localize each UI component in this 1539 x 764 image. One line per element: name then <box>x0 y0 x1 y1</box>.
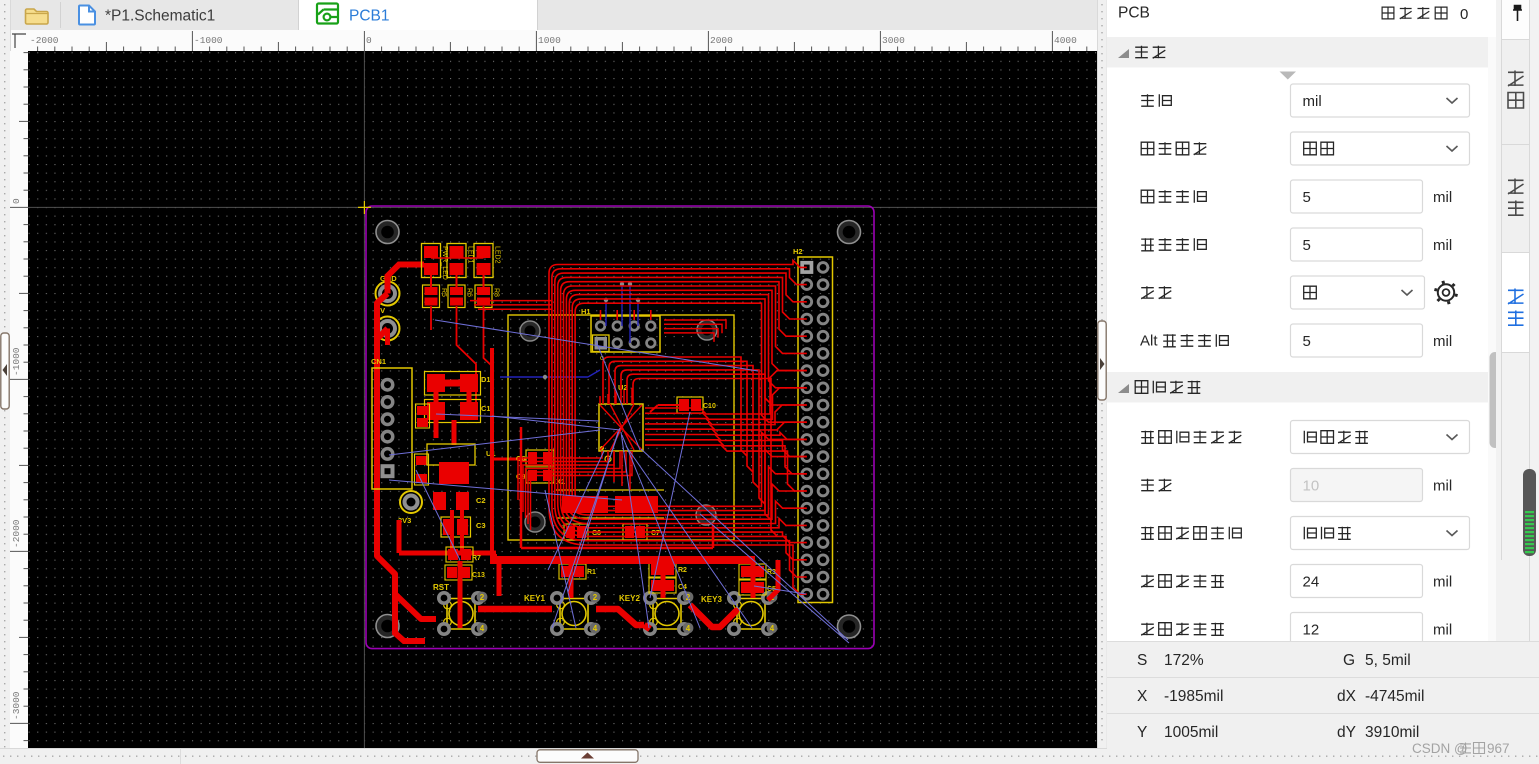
svg-text:LED2: LED2 <box>494 246 501 264</box>
svg-text:4: 4 <box>593 624 598 633</box>
svg-text:-1000: -1000 <box>11 347 22 376</box>
svg-text:U2: U2 <box>618 383 628 392</box>
svg-text:0: 0 <box>1460 6 1468 23</box>
svg-text:mil: mil <box>1433 478 1452 495</box>
svg-text:C13: C13 <box>472 572 485 579</box>
svg-text:2: 2 <box>480 593 485 602</box>
svg-text:KEY3: KEY3 <box>701 595 722 604</box>
svg-text:4: 4 <box>686 624 691 633</box>
svg-text:mil: mil <box>1433 189 1452 206</box>
svg-text:1000: 1000 <box>538 35 561 46</box>
svg-text:-2000: -2000 <box>11 519 22 548</box>
svg-text:0: 0 <box>11 198 22 204</box>
svg-text:CSDN @: CSDN @ <box>1412 741 1468 756</box>
svg-text:KEY1: KEY1 <box>524 594 545 603</box>
svg-text:-1000: -1000 <box>194 35 223 46</box>
svg-text:KEY2: KEY2 <box>619 594 640 603</box>
svg-text:Alt: Alt <box>1140 333 1158 350</box>
svg-text:12: 12 <box>1303 622 1320 639</box>
svg-text:D1: D1 <box>481 375 491 384</box>
svg-text:-4745mil: -4745mil <box>1365 688 1424 705</box>
svg-text:C2: C2 <box>476 496 486 505</box>
svg-text:967: 967 <box>1487 741 1510 756</box>
svg-text:5, 5mil: 5, 5mil <box>1365 652 1411 669</box>
svg-text:H1: H1 <box>581 307 591 316</box>
svg-text:R1: R1 <box>587 569 596 576</box>
svg-text:4000: 4000 <box>1054 35 1077 46</box>
svg-text:R6: R6 <box>466 288 473 297</box>
svg-text:R8: R8 <box>493 288 500 297</box>
svg-text:mil: mil <box>1433 622 1452 639</box>
svg-text:-3000: -3000 <box>11 691 22 720</box>
svg-text:172%: 172% <box>1164 652 1204 669</box>
svg-text:C3: C3 <box>476 521 486 530</box>
svg-text:Y: Y <box>1137 724 1147 741</box>
svg-text:10: 10 <box>1303 478 1320 495</box>
svg-text:mil: mil <box>1433 333 1452 350</box>
svg-text:mil: mil <box>1303 93 1322 110</box>
svg-text:R7: R7 <box>472 555 481 562</box>
svg-text:G: G <box>1343 652 1355 669</box>
svg-text:3910mil: 3910mil <box>1365 724 1419 741</box>
svg-text:0: 0 <box>366 35 372 46</box>
svg-text:R5: R5 <box>440 288 447 297</box>
svg-text:2000: 2000 <box>710 35 733 46</box>
svg-text:C10: C10 <box>703 403 716 410</box>
svg-text:*P1.Schematic1: *P1.Schematic1 <box>105 8 215 25</box>
svg-text:R2: R2 <box>678 567 687 574</box>
svg-text:dY: dY <box>1337 724 1356 741</box>
svg-text:LED1: LED1 <box>467 246 474 264</box>
svg-text:S: S <box>1137 652 1147 669</box>
svg-text:-1985mil: -1985mil <box>1164 688 1223 705</box>
svg-text:mil: mil <box>1433 574 1452 591</box>
svg-text:C1: C1 <box>481 404 491 413</box>
svg-text:5: 5 <box>1303 333 1311 350</box>
svg-text:PCB1: PCB1 <box>349 8 390 25</box>
svg-text:3000: 3000 <box>882 35 905 46</box>
svg-text:4: 4 <box>480 624 485 633</box>
svg-text:PCB: PCB <box>1118 5 1150 22</box>
svg-text:5: 5 <box>1303 189 1311 206</box>
svg-text:mil: mil <box>1433 237 1452 254</box>
svg-text:5: 5 <box>1303 237 1311 254</box>
svg-text:4: 4 <box>770 624 775 633</box>
svg-text:-2000: -2000 <box>30 35 59 46</box>
svg-text:dX: dX <box>1337 688 1357 705</box>
svg-text:24: 24 <box>1303 574 1320 591</box>
svg-text:H2: H2 <box>793 247 803 256</box>
svg-text:2: 2 <box>593 593 598 602</box>
svg-text:CN1: CN1 <box>371 357 386 366</box>
svg-text:X: X <box>1137 688 1148 705</box>
svg-text:1005mil: 1005mil <box>1164 724 1218 741</box>
svg-text:RST: RST <box>433 583 449 592</box>
